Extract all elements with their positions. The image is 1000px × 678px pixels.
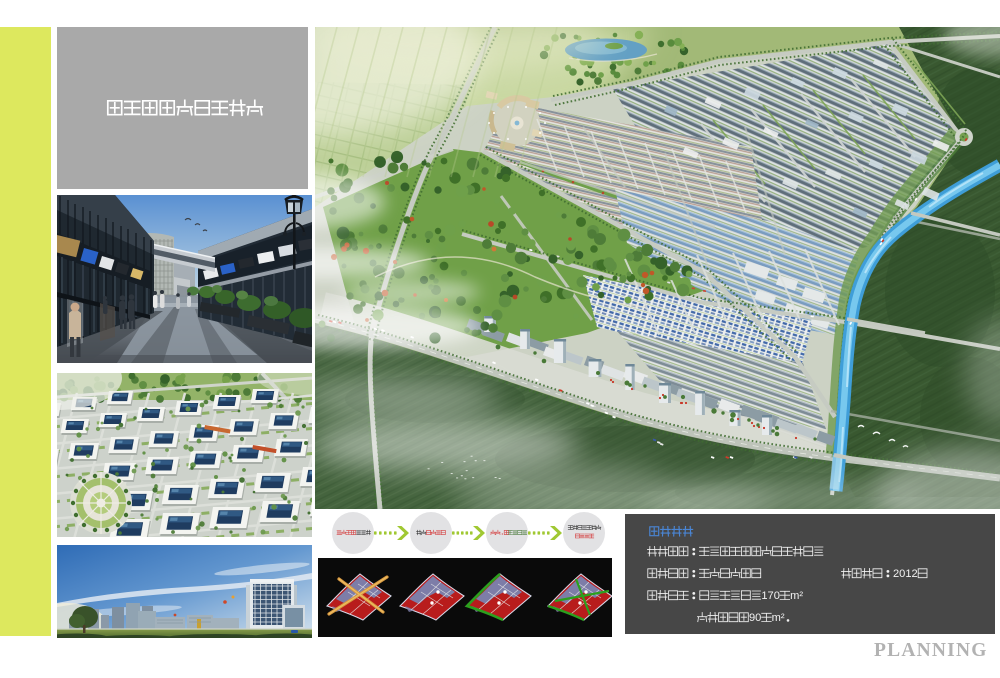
svg-text:170: 170: [761, 590, 780, 602]
svg-text:2012: 2012: [893, 568, 918, 580]
svg-text:m²: m²: [790, 590, 803, 602]
svg-text:m²: m²: [772, 612, 785, 624]
svg-text:90: 90: [749, 612, 761, 624]
